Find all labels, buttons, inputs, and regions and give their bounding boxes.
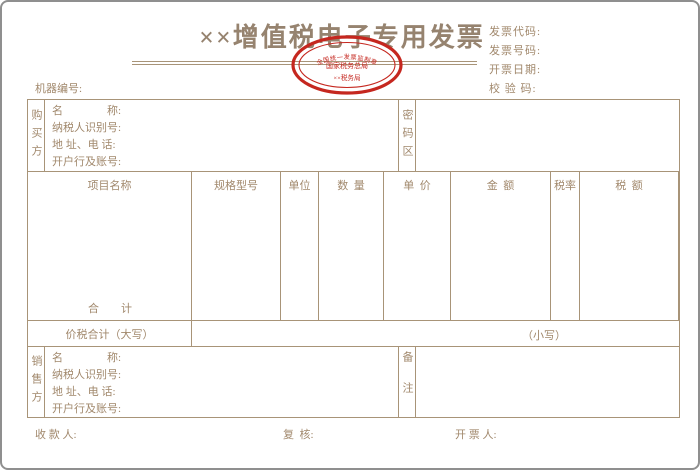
invoice-meta-labels: 发票代码: 发票号码: 开票日期: 校 验 码: xyxy=(489,23,541,99)
col-unit-price: 单 价 xyxy=(384,172,451,320)
total-in-figures-label: （小写） xyxy=(522,327,566,343)
col-tax-rate: 税率 xyxy=(551,172,580,320)
buyer-taxid-label: 纳税人识别号: xyxy=(52,120,398,137)
machine-number-label: 机器编号: xyxy=(35,80,82,96)
seller-side-text: 销售方 xyxy=(28,355,44,409)
header-quantity: 数 量 xyxy=(319,172,383,197)
total-row-label: 合 计 xyxy=(28,300,192,316)
header-unit-price: 单 价 xyxy=(384,172,450,197)
buyer-section: 购买方 名 称: 纳税人识别号: 地 址、电 话: 开户行及账号: 密码区 xyxy=(27,99,680,172)
header-item-name: 项目名称 xyxy=(28,172,191,197)
items-table: 项目名称 规格型号 单位 数 量 单 价 金 额 税率 税 额 xyxy=(27,171,680,321)
col-unit: 单位 xyxy=(281,172,319,320)
seller-address-label: 地 址、电 话: xyxy=(52,384,398,401)
header-tax-amount: 税 额 xyxy=(580,172,678,197)
buyer-name-label: 名 称: xyxy=(52,103,398,120)
tax-supervision-seal-icon: 全国统一发票监制章 国家税务总局 ××税务局 xyxy=(289,34,405,96)
header-tax-rate: 税率 xyxy=(551,172,579,197)
header-spec: 规格型号 xyxy=(192,172,280,197)
col-spec: 规格型号 xyxy=(192,172,281,320)
remarks-blank xyxy=(416,347,679,417)
seller-section: 销售方 名 称: 纳税人识别号: 地 址、电 话: 开户行及账号: 备注 xyxy=(27,346,680,418)
remarks-text: 备注 xyxy=(399,351,415,413)
buyer-fields: 名 称: 纳税人识别号: 地 址、电 话: 开户行及账号: xyxy=(45,100,398,171)
drawer-label: 开 票 人: xyxy=(455,426,497,442)
invoice-page: ××增值税电子专用发票 发票代码: 发票号码: 开票日期: 校 验 码: 机器编… xyxy=(0,0,700,470)
seller-taxid-label: 纳税人识别号: xyxy=(52,367,398,384)
seller-side-label: 销售方 xyxy=(28,347,45,417)
buyer-side-label: 购买方 xyxy=(28,100,45,171)
invoice-date-label: 开票日期: xyxy=(489,61,541,80)
seller-name-label: 名 称: xyxy=(52,350,398,367)
payee-label: 收 款 人: xyxy=(35,426,77,442)
password-area-text: 密码区 xyxy=(399,109,415,163)
remarks-label: 备注 xyxy=(398,347,416,417)
invoice-form: 购买方 名 称: 纳税人识别号: 地 址、电 话: 开户行及账号: 密码区 项目… xyxy=(27,100,680,418)
total-in-words-label: 价税合计（大写） xyxy=(28,321,192,346)
buyer-bank-label: 开户行及账号: xyxy=(52,154,398,171)
header-unit: 单位 xyxy=(281,172,318,197)
seal-middle-text: 国家税务总局 xyxy=(326,61,368,70)
header-amount: 金 额 xyxy=(451,172,550,197)
buyer-address-label: 地 址、电 话: xyxy=(52,137,398,154)
col-quantity: 数 量 xyxy=(319,172,384,320)
password-area-label: 密码区 xyxy=(398,100,416,171)
invoice-number-label: 发票号码: xyxy=(489,42,541,61)
col-tax-amount: 税 额 xyxy=(580,172,679,320)
col-item-name: 项目名称 xyxy=(28,172,192,320)
seller-fields: 名 称: 纳税人识别号: 地 址、电 话: 开户行及账号: xyxy=(45,347,398,417)
seal-bottom-text: ××税务局 xyxy=(333,73,361,82)
password-area-blank xyxy=(416,100,679,171)
check-code-label: 校 验 码: xyxy=(489,80,541,99)
invoice-code-label: 发票代码: xyxy=(489,23,541,42)
total-value-cell: （小写） xyxy=(192,321,679,346)
seller-bank-label: 开户行及账号: xyxy=(52,401,398,418)
total-with-tax-row: 价税合计（大写） （小写） xyxy=(27,320,680,347)
reviewer-label: 复 核: xyxy=(283,426,314,442)
col-amount: 金 额 xyxy=(451,172,551,320)
buyer-side-text: 购买方 xyxy=(28,109,44,163)
